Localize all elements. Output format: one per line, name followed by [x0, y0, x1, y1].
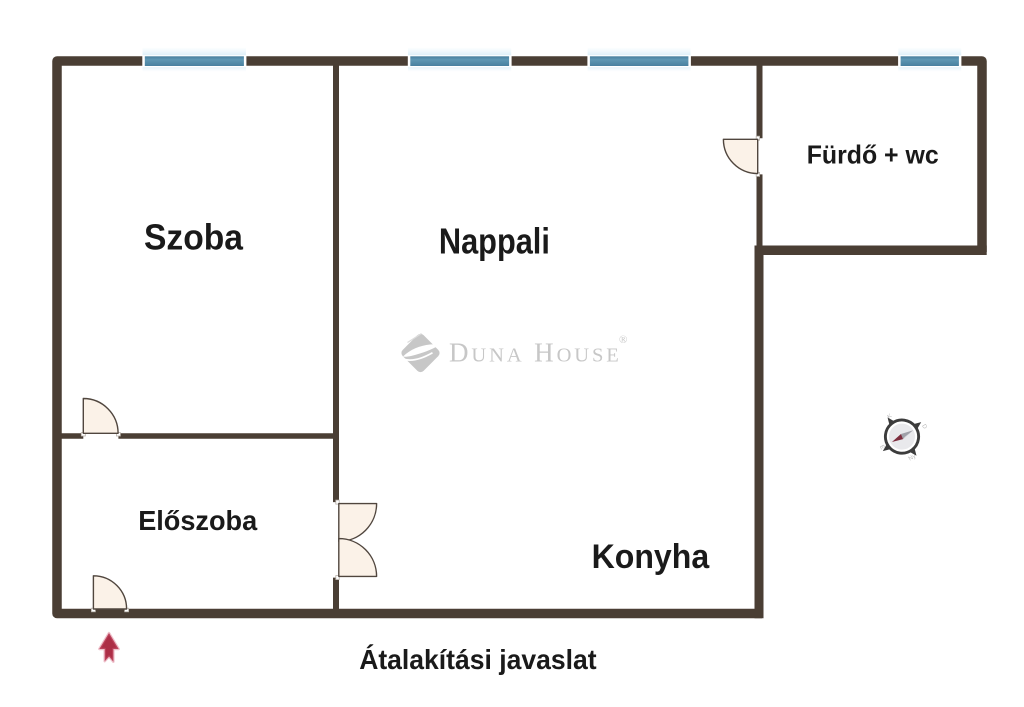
- svg-text:Nappali: Nappali: [439, 222, 550, 262]
- svg-text:®: ®: [619, 334, 627, 346]
- svg-text:Szoba: Szoba: [144, 216, 244, 257]
- svg-text:Fürdő + wc: Fürdő + wc: [807, 142, 939, 170]
- svg-text:Előszoba: Előszoba: [138, 505, 258, 536]
- svg-text:Átalakítási javaslat: Átalakítási javaslat: [359, 644, 596, 675]
- svg-text:Konyha: Konyha: [592, 538, 710, 576]
